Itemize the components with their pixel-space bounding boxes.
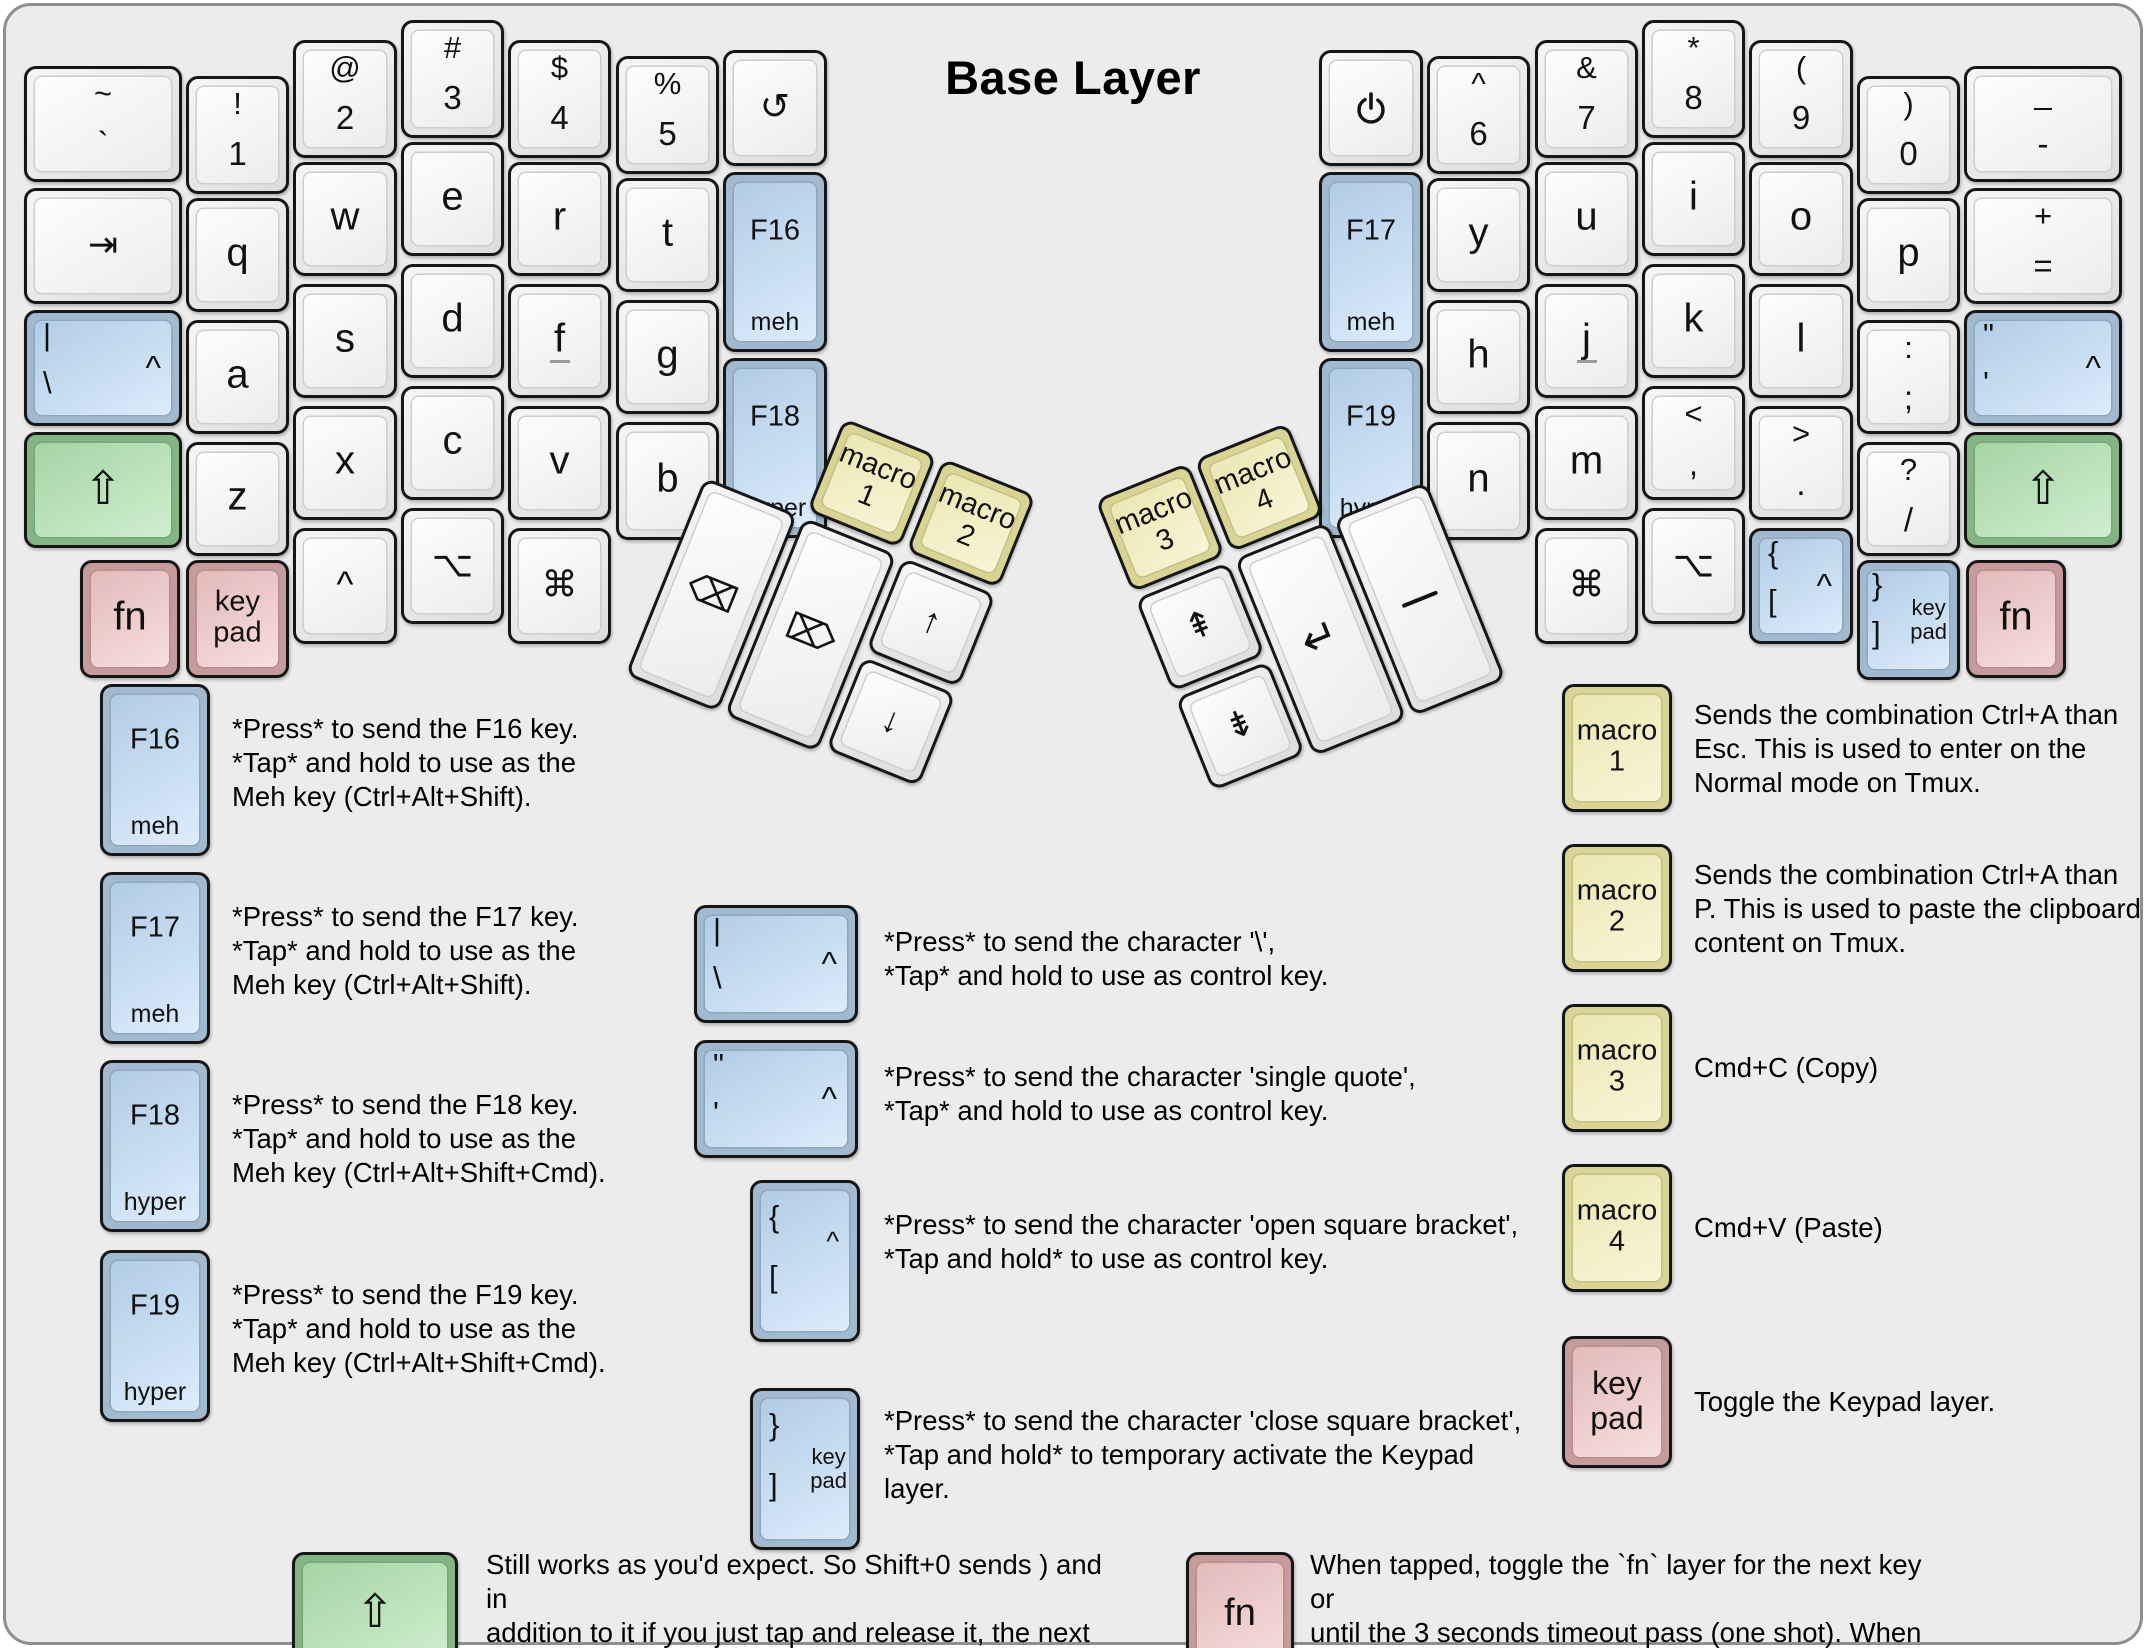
key-label: % [619,66,716,102]
key-label: q [189,231,286,276]
key-label: z [189,475,286,520]
macro1-key-illustration: macro 1 [1562,684,1672,812]
page-title: Base Layer [873,50,1273,105]
key-label: y [1430,211,1527,256]
key-x: x [293,406,397,520]
key-s: s [293,284,397,398]
key-label: e [404,175,501,220]
key-label: fn [1969,595,2063,640]
key-slash: ?/ [1857,442,1960,556]
legend-f18-text: *Press* to send the F18 key. *Tap* and h… [232,1088,672,1190]
key-label: o [1752,195,1850,240]
key-label: = [1967,247,2119,285]
macro3-key-illustration: macro 3 [1562,1004,1672,1132]
key-label: d [404,297,501,342]
key-label: _ [1967,76,2119,112]
key-l: l [1749,284,1853,398]
key-label: ! [189,86,286,122]
key-label: : [1860,330,1957,366]
key-num7: &7 [1535,40,1638,158]
key-label: macro 4 [1204,440,1315,533]
key-label: - [1967,125,2119,163]
key-label: k [1645,297,1742,342]
home-row-marker [550,360,570,363]
legend-macro2-text: Sends the combination Ctrl+A than P. Thi… [1694,858,2146,960]
key-a: a [186,320,289,434]
key-label: ' [1983,365,1989,401]
key-label: { [1768,535,1778,571]
key-lbracket-ctrl: {[^ [1749,528,1853,644]
key-num2: @2 [293,40,397,158]
legend-macro1-text: Sends the combination Ctrl+A than Esc. T… [1694,698,2146,800]
key-label: n [1430,457,1527,502]
key-label: c [404,419,501,464]
key-label: F16 [726,214,824,247]
key-g: g [616,300,719,414]
key-label: ^ [146,349,162,387]
key-num4: $4 [508,40,611,158]
key-num6: ^6 [1427,56,1530,174]
key-label: # [404,30,501,66]
key-label: } [1872,567,1882,603]
key-grave: ~` [24,66,182,182]
key-label: 3 [404,79,501,117]
fn-key-illustration: fn [1186,1552,1294,1648]
key-label: w [296,195,394,240]
key-label: / [1860,501,1957,539]
key-label: m [1538,439,1635,484]
key-label: ) [1860,86,1957,122]
key-label: meh [1322,308,1420,337]
key-e: e [401,142,504,256]
power-icon [1351,88,1391,128]
key-num3: #3 [401,20,504,138]
key-keypad-left: key pad [186,560,289,678]
key-f16: F16meh [723,172,827,352]
key-label: ⌥ [1645,543,1742,585]
key-y: y [1427,178,1530,292]
key-label: x [296,439,394,484]
key-label: p [1860,231,1957,276]
key-c: c [401,386,504,500]
key-label: 1 [189,135,286,173]
f17-key-illustration: F17meh [100,872,210,1044]
key-m: m [1535,406,1638,520]
key-label: \ [43,365,52,401]
key-label: 5 [619,115,716,153]
home-row-marker [1577,360,1597,363]
key-label: F17 [1322,214,1420,247]
key-label: ^ [1817,567,1833,605]
key-num8: *8 [1642,20,1745,138]
key-ctrl-left: ^ [293,528,397,644]
key-w: w [293,162,397,276]
key-label: 7 [1538,99,1635,137]
legend-f19-text: *Press* to send the F19 key. *Tap* and h… [232,1278,672,1380]
legend-f17-text: *Press* to send the F17 key. *Tap* and h… [232,900,672,1002]
key-label: + [1967,198,2119,234]
f18-key-illustration: F18hyper [100,1060,210,1232]
key-label: fn [83,595,177,640]
legend-shift-text: Still works as you'd expect. So Shift+0 … [486,1548,1106,1648]
legend-quote-text: *Press* to send the character 'single qu… [884,1060,1504,1128]
legend-macro4-text: Cmd+V (Paste) [1694,1211,2146,1245]
keyboard-layout-diagram: Base Layer ~`⇥|\^⇧fnkey pad!1qaz@2wsx^#3… [0,0,2146,1648]
key-label: key pad [1910,596,1947,644]
key-label: . [1752,465,1850,503]
keypad-key-illustration: key pad [1562,1336,1672,1468]
open-bracket-key-illustration: {[^ [750,1180,860,1342]
key-label: meh [726,308,824,337]
key-d: d [401,264,504,378]
key-q: q [186,198,289,312]
key-minus: _- [1964,66,2122,182]
key-label: macro 3 [1104,480,1215,573]
key-num9: (9 [1749,40,1853,158]
key-k: k [1642,264,1745,378]
key-label: ; [1860,379,1957,417]
key-label: ^ [296,563,394,605]
legend-f16-text: *Press* to send the F16 key. *Tap* and h… [232,712,672,814]
key-label: v [511,439,608,484]
key-label: | [43,317,51,353]
key-undo: ↺ [723,50,827,166]
key-label: < [1645,396,1742,432]
key-label: 9 [1752,99,1850,137]
legend-macro3-text: Cmd+C (Copy) [1694,1051,2146,1085]
key-f17: F17meh [1319,172,1423,352]
key-quote-ctrl: "'^ [1964,310,2122,426]
key-label: ⇧ [27,461,179,515]
key-label: l [1752,317,1850,362]
key-z: z [186,442,289,556]
close-bracket-key-illustration: }]key pad [750,1388,860,1550]
key-fn-right: fn [1966,560,2066,678]
legend-keypad-text: Toggle the Keypad layer. [1694,1385,2146,1419]
key-rbracket-keypad: }]key pad [1857,560,1960,680]
quote-key-illustration: "'^ [694,1040,858,1158]
key-label: 8 [1645,79,1742,117]
key-num5: %5 [616,56,719,174]
macro4-key-illustration: macro 4 [1562,1164,1672,1292]
key-label: ⌘ [511,563,608,605]
key-label: ` [27,125,179,163]
key-label: ⇧ [1967,461,2119,515]
key-semicolon: :; [1857,320,1960,434]
key-label: " [1983,317,1994,353]
key-label: ⇥ [27,223,179,265]
legend-fn-text: When tapped, toggle the `fn` layer for t… [1310,1548,1950,1648]
key-h: h [1427,300,1530,414]
key-alt-left: ⌥ [401,508,504,624]
key-t: t [616,178,719,292]
key-label: ? [1860,452,1957,488]
key-plus: += [1964,188,2122,304]
key-label: i [1645,175,1742,220]
f19-key-illustration: F19hyper [100,1250,210,1422]
key-power [1319,50,1423,166]
key-i: i [1642,142,1745,256]
key-label: ⌥ [404,543,501,585]
key-label: > [1752,416,1850,452]
key-label: macro 1 [817,435,928,528]
legend-close-bracket-text: *Press* to send the character 'close squ… [884,1404,1524,1506]
key-v: v [508,406,611,520]
key-f: f [508,284,611,398]
macro2-key-illustration: macro 2 [1562,844,1672,972]
key-label: t [619,211,716,256]
key-shift-right: ⇧ [1964,432,2122,548]
key-o: o [1749,162,1853,276]
legend-backslash-text: *Press* to send the character '\', *Tap*… [884,925,1504,993]
key-pipe-ctrl: |\^ [24,310,182,426]
key-label: 0 [1860,135,1957,173]
key-label: [ [1768,583,1777,619]
key-cmd-right: ⌘ [1535,528,1638,644]
key-num0: )0 [1857,76,1960,194]
key-label: ] [1872,615,1881,651]
key-label: , [1645,445,1742,483]
key-label: g [619,333,716,378]
key-label: 4 [511,99,608,137]
key-j: j [1535,284,1638,398]
key-num1: !1 [186,76,289,194]
key-label: j [1538,317,1635,362]
key-label: f [511,317,608,362]
key-comma: <, [1642,386,1745,500]
key-label: a [189,353,286,398]
key-shift-left: ⇧ [24,432,182,548]
key-label: ⌘ [1538,563,1635,605]
key-label: ~ [27,76,179,112]
key-label: 6 [1430,115,1527,153]
key-u: u [1535,162,1638,276]
legend-open-bracket-text: *Press* to send the character 'open squa… [884,1208,1524,1276]
key-label: ( [1752,50,1850,86]
backslash-key-illustration: |\^ [694,905,858,1023]
key-p: p [1857,198,1960,312]
key-tab: ⇥ [24,188,182,304]
key-label: $ [511,50,608,86]
key-alt-right: ⌥ [1642,508,1745,624]
key-cmd-left: ⌘ [508,528,611,644]
key-label: ^ [1430,66,1527,102]
key-label: u [1538,195,1635,240]
key-label: s [296,317,394,362]
key-label: 2 [296,99,394,137]
f16-key-illustration: F16meh [100,684,210,856]
key-label: macro 2 [916,475,1027,568]
key-period: >. [1749,406,1853,520]
shift-key-illustration: ⇧ [292,1552,458,1648]
key-label: ↺ [726,85,824,127]
key-label: h [1430,333,1527,378]
key-label: * [1645,30,1742,66]
key-label: key pad [189,586,286,649]
key-label: & [1538,50,1635,86]
key-label: @ [296,50,394,86]
key-label: ^ [2086,349,2102,387]
key-fn-left: fn [80,560,180,678]
key-r: r [508,162,611,276]
key-label: r [511,195,608,240]
